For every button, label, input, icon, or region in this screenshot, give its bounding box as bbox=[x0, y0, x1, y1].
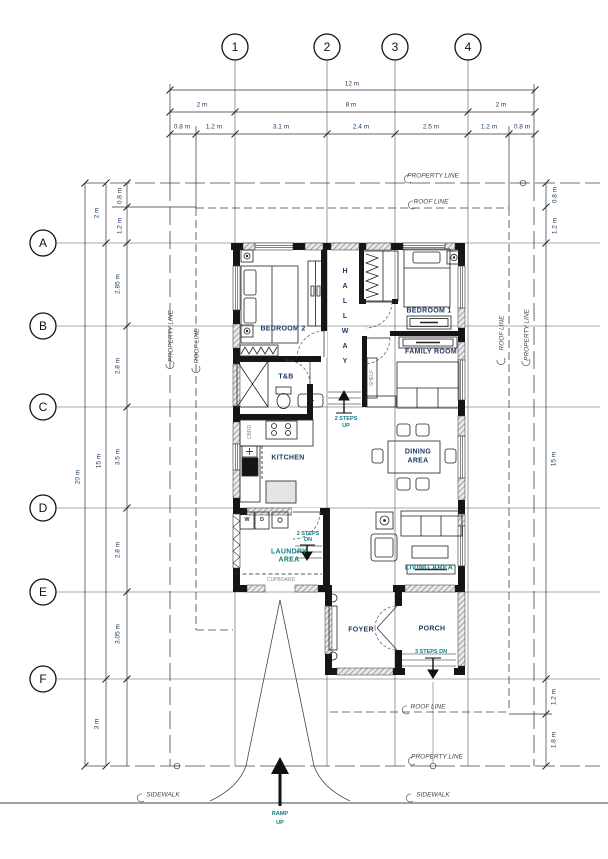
dim-top-seg-4: 2.4 m bbox=[353, 124, 369, 131]
room-label-family: FAMILY ROOM bbox=[405, 349, 457, 356]
steps3-dn-label: 3 STEPS DN bbox=[415, 649, 447, 655]
property-line-label-right: PROPERTY LINE bbox=[524, 309, 531, 361]
ramp-label-1: RAMP bbox=[272, 811, 288, 817]
steps-up-label-2: UP bbox=[342, 423, 350, 429]
dim-left-row-de: 2.8 m bbox=[115, 542, 122, 558]
dim-right-bottom-1: 1.2 m bbox=[551, 689, 558, 705]
dimension-lines bbox=[85, 84, 552, 766]
site-lines bbox=[0, 175, 608, 803]
steps-dn-label-2: DN bbox=[304, 537, 312, 543]
dim-top-group-1: 2 m bbox=[197, 102, 208, 109]
roof-line-label-right: ROOF LINE bbox=[499, 316, 506, 351]
dim-left-row-ab: 2.85 m bbox=[115, 274, 122, 294]
dim-left-house: 15 m bbox=[96, 454, 103, 468]
dim-left-frontage: 2 m bbox=[94, 208, 101, 219]
dim-top-group-2: 8 m bbox=[346, 102, 357, 109]
grid-bubble-2: 2 bbox=[324, 40, 331, 54]
room-label-bedroom1: BEDROOM 1 bbox=[406, 308, 451, 315]
cbrd-label: CBRD bbox=[247, 425, 253, 439]
room-label-kitchen: KITCHEN bbox=[271, 455, 304, 462]
grid-bubble-f: F bbox=[39, 672, 46, 686]
dim-right-split-1: 0.8 m bbox=[552, 187, 559, 203]
room-label-laundry-2: AREA bbox=[278, 557, 299, 564]
dim-left-row-bc: 2.8 m bbox=[115, 358, 122, 374]
room-label-tb: T&B bbox=[278, 374, 293, 381]
sidewalk-label-left: SIDEWALK bbox=[146, 792, 179, 799]
grid-bubble-a: A bbox=[39, 236, 47, 250]
grid-bubble-1: 1 bbox=[232, 40, 239, 54]
dimension-ticks bbox=[82, 87, 550, 770]
dryer-label: D bbox=[260, 517, 264, 523]
dim-top-seg-7: 0.8 m bbox=[514, 124, 530, 131]
dim-top-seg-3: 3.1 m bbox=[273, 124, 289, 131]
cupboard-label: CUPBOARD bbox=[267, 577, 295, 583]
dim-right-bottom-2: 1.8 m bbox=[551, 732, 558, 748]
sidewalk-label-right: SIDEWALK bbox=[416, 792, 449, 799]
dim-right-house: 15 m bbox=[551, 452, 558, 466]
property-line-label-top: PROPERTY LINE bbox=[407, 173, 459, 180]
furniture-bedroom2 bbox=[240, 250, 323, 356]
grid-bubble-b: B bbox=[39, 319, 47, 333]
grid-bubble-3: 3 bbox=[392, 40, 399, 54]
ramp-label-2: UP bbox=[276, 820, 284, 826]
grid-bubble-e: E bbox=[39, 585, 47, 599]
dim-right-split-2: 1.2 m bbox=[552, 218, 559, 234]
dim-top-seg-1: 0.8 m bbox=[174, 124, 190, 131]
dim-left-split-2: 1.2 m bbox=[117, 218, 124, 234]
dim-left-rear: 3 m bbox=[94, 719, 101, 730]
dim-left-split-1: 0.8 m bbox=[117, 188, 124, 204]
room-label-bedroom2: BEDROOM 2 bbox=[260, 326, 305, 333]
steps-up-label-1: 2 STEPS bbox=[335, 416, 358, 422]
dim-top-total: 12 m bbox=[345, 81, 359, 88]
washer-label: W bbox=[244, 517, 249, 523]
dim-left-row-cd: 3.5 m bbox=[115, 449, 122, 465]
room-label-hallway: HALLWAY bbox=[342, 268, 349, 373]
grid-bubble-d: D bbox=[39, 501, 48, 515]
grid-bubble-4: 4 bbox=[465, 40, 472, 54]
room-label-dining-2: AREA bbox=[407, 458, 428, 465]
room-label-living: LIVING AREA bbox=[405, 565, 453, 572]
roof-line-label-top: ROOF LINE bbox=[414, 199, 449, 206]
shelf-label: SHELF bbox=[369, 370, 375, 386]
grid-bubbles bbox=[30, 34, 481, 692]
roof-line-label-left: ROOF LINE bbox=[194, 329, 201, 364]
room-label-dining-1: DINING bbox=[405, 449, 431, 456]
room-label-foyer: FOYER bbox=[348, 627, 374, 634]
dim-top-seg-2: 1.2 m bbox=[206, 124, 222, 131]
dim-top-seg-5: 2.5 m bbox=[423, 124, 439, 131]
roof-line-label-bottom: ROOF LINE bbox=[411, 704, 446, 711]
dim-top-group-3: 2 m bbox=[496, 102, 507, 109]
dim-left-row-ef: 3.05 m bbox=[115, 624, 122, 644]
grid-bubble-c: C bbox=[39, 400, 48, 414]
furniture-bedroom1 bbox=[361, 249, 461, 329]
property-line-label-left: PROPERTY LINE bbox=[168, 310, 175, 362]
dim-top-seg-6: 1.2 m bbox=[481, 124, 497, 131]
floor-plan-page: 1 2 3 4 A B C D E F 12 m 2 m 8 m 2 m 0.8… bbox=[0, 0, 608, 859]
property-line-label-bottom: PROPERTY LINE bbox=[411, 754, 463, 761]
dim-left-overall: 20 m bbox=[75, 470, 82, 484]
room-label-laundry-1: LAUNDRY bbox=[271, 549, 307, 556]
room-label-porch: PORCH bbox=[419, 626, 446, 633]
